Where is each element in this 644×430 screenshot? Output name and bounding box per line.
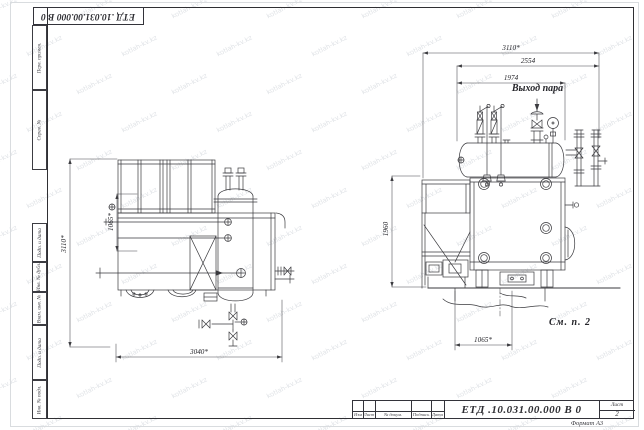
drawing-sheet: kotlah-kv.kzkotlah-kv.kzkotlah-kv.kzkotl… (0, 0, 644, 430)
right-view (422, 104, 620, 316)
dim-right-height: 1960 (381, 211, 391, 247)
dim-right-pit: 1065* (453, 335, 513, 345)
left-view (96, 160, 294, 346)
col-list: Лист (363, 411, 375, 420)
title-block: Изм Лист № докум. Подпись Дата ЕТД .10.0… (352, 400, 634, 419)
col-izm: Изм (353, 411, 363, 420)
see-note-label: См. п. 2 (540, 317, 600, 328)
manholes (479, 179, 552, 264)
col-podpis: Подпись (411, 411, 431, 420)
dimension-lines (70, 53, 599, 362)
sheet-label: Лист (599, 402, 635, 408)
dim-left-height: 3110* (59, 226, 69, 262)
dim-left-width: 3040* (169, 347, 229, 357)
dim-right-drum: 2554 (498, 56, 558, 66)
document-designation: ЕТД .10.031.00.000 В 0 (444, 401, 599, 418)
col-data: Дата (431, 411, 444, 420)
col-docum: № докум. (375, 411, 411, 420)
dim-right-inner: 1974 (481, 73, 541, 83)
sheet-number: 2 (599, 410, 635, 418)
dim-right-overall: 3110* (481, 43, 541, 53)
format-note: Формат А3 (552, 420, 622, 427)
dim-left-inner: 1065* (106, 204, 116, 240)
steam-outlet-label: Выход пара (495, 83, 580, 94)
